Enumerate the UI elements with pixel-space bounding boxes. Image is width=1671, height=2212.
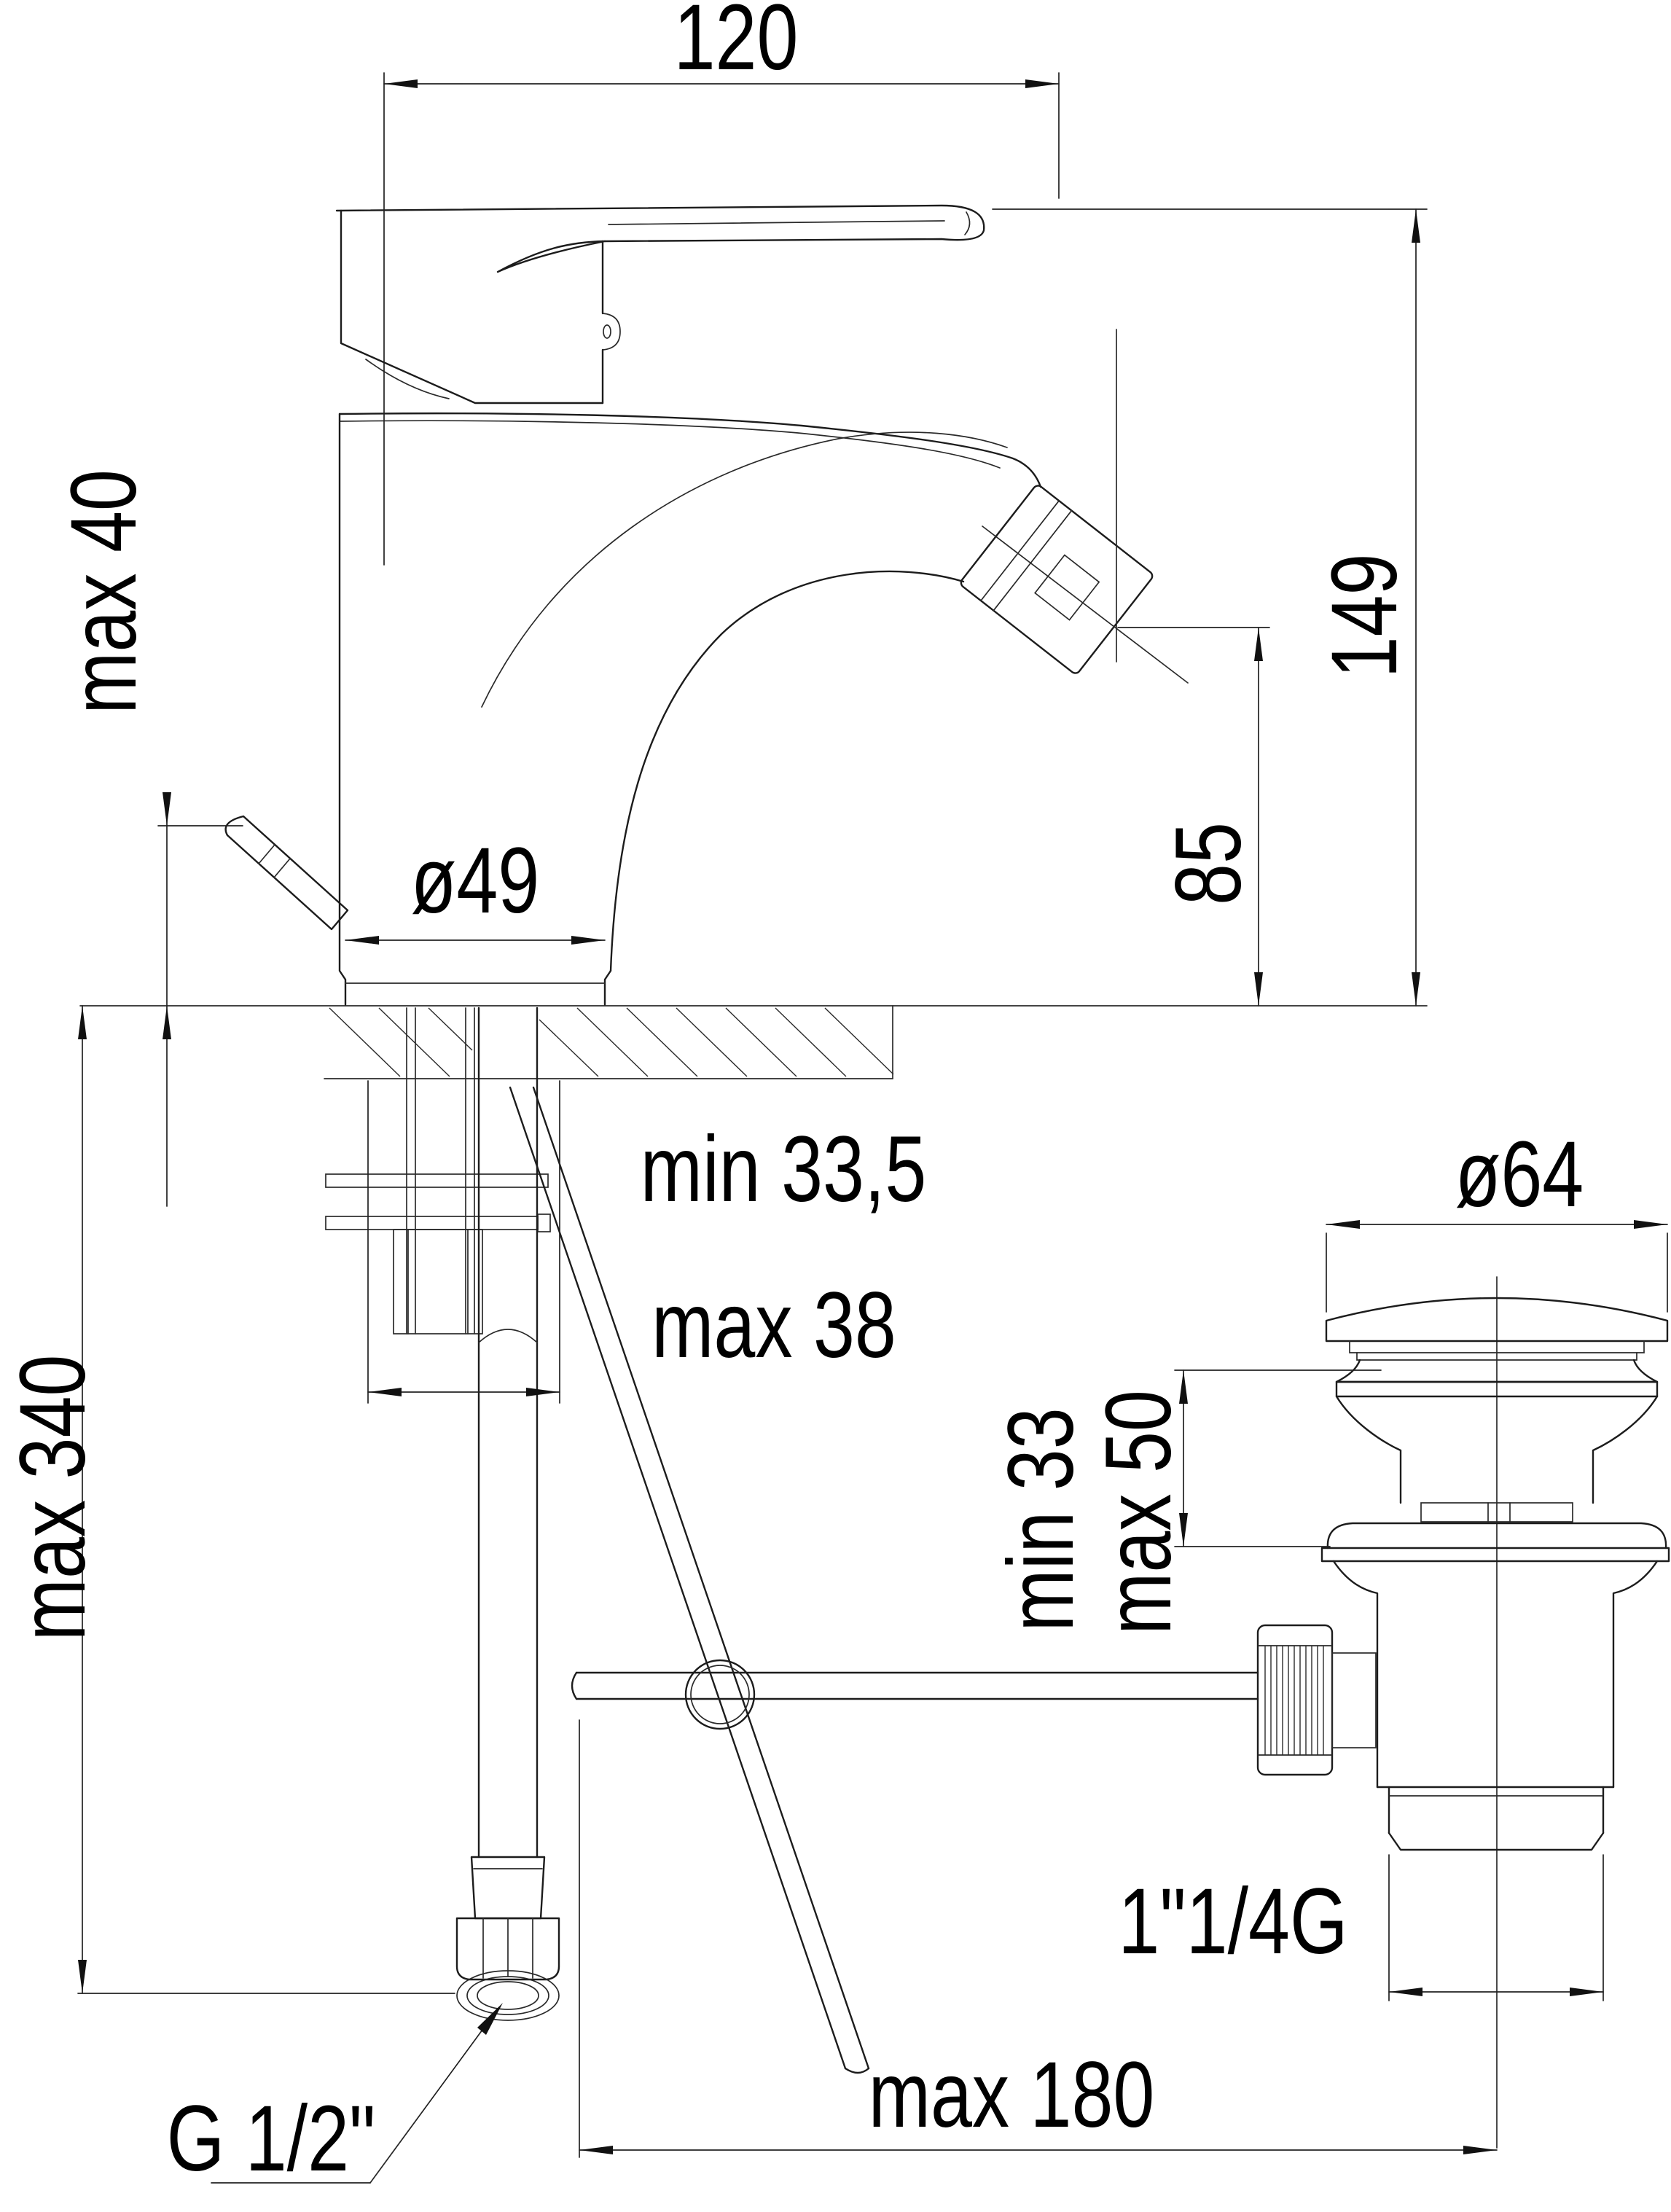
rod-end-cap	[572, 1673, 576, 1699]
washer-lower-cap	[538, 1214, 550, 1232]
nut-face-outer	[457, 1971, 559, 2020]
label-120: 120	[674, 0, 799, 90]
spout-front-profile	[611, 571, 963, 971]
handle-seam	[608, 221, 944, 224]
label-max180: max 180	[869, 2042, 1155, 2147]
pivot-left-edge	[341, 211, 603, 403]
rod-tip	[845, 2068, 869, 2073]
handle-lever	[337, 206, 984, 272]
nut-collar	[1332, 1653, 1376, 1748]
popup-lever-knob	[226, 816, 348, 929]
dim-deck-thickness: min 33,5 max 38	[368, 1081, 926, 1403]
nut-face-bore	[477, 1982, 539, 2009]
fixing-hardware	[326, 1008, 550, 1334]
washer-lower	[326, 1216, 538, 1230]
mounting-deck	[80, 1006, 1427, 1079]
handle-pivot-block	[341, 211, 620, 403]
label-min335: min 33,5	[641, 1117, 927, 1222]
label-o64: ø64	[1455, 1122, 1584, 1227]
dim-waste-thread: 1"1/4G	[1118, 1855, 1603, 2001]
nozzle-insert	[1035, 555, 1099, 620]
label-85: 85	[1156, 822, 1261, 905]
base-right-chamfer	[605, 971, 611, 1005]
drawing-sheet: 120 149 85 max 40 ø49 min 33,5	[0, 0, 1671, 2212]
lever-seam-1	[259, 845, 275, 864]
aerator-nozzle	[959, 484, 1154, 676]
flexible-hose	[457, 1008, 559, 2020]
body-top-seam	[340, 421, 1000, 468]
lever-seam-2	[274, 859, 290, 878]
threaded-studs	[407, 1008, 474, 1334]
dim-waste-deck-thickness: min 33 max 50	[988, 1370, 1381, 1635]
label-max40: max 40	[51, 469, 156, 714]
leader-hose-thread: G 1/2"	[167, 2003, 503, 2191]
nozzle-axis-centerline	[982, 526, 1188, 683]
handle-spike	[498, 241, 605, 272]
knurling	[1265, 1646, 1323, 1755]
pull-rod-diagonal	[510, 1087, 869, 2073]
washer-upper	[326, 1174, 548, 1187]
waste-knurled-nut	[1258, 1625, 1376, 1775]
pivot-bevel-shadow	[366, 359, 449, 399]
faucet-mixer	[226, 206, 1188, 1005]
hose-collar	[471, 1857, 544, 1918]
label-G12: G 1/2"	[167, 2086, 376, 2191]
label-min33: min 33	[988, 1407, 1093, 1631]
nozzle-outline	[959, 484, 1154, 676]
dim-spout-height: 85	[1118, 628, 1269, 1006]
nozzle-ring-1	[981, 501, 1059, 601]
label-1-14G: 1"1/4G	[1118, 1869, 1347, 1974]
deck-hatching	[329, 1008, 893, 1076]
hose-hex-nut	[457, 1918, 559, 2020]
dim-lever-max: max 40	[51, 469, 243, 1206]
popup-waste	[1258, 1277, 1669, 2148]
ball-joint	[686, 1660, 754, 1729]
lever-knob-outline	[226, 816, 348, 929]
dim-spout-projection: 120	[384, 0, 1059, 565]
technical-drawing: 120 149 85 max 40 ø49 min 33,5	[0, 0, 1671, 2212]
handle-end-seam	[965, 212, 970, 235]
screw-boss	[603, 313, 620, 350]
horizontal-rod	[572, 1673, 1258, 1699]
dim-rod-reach: max 180	[579, 1720, 1497, 2157]
nozzle-centerlines	[982, 329, 1188, 683]
screw-slot	[603, 325, 611, 338]
spout-crease	[482, 432, 1007, 707]
hose-bend-seam	[479, 1329, 537, 1343]
dim-supply-max: max 340	[0, 1006, 455, 1993]
label-149: 149	[1312, 554, 1417, 679]
body-top-spout-top	[340, 413, 1041, 487]
label-max50: max 50	[1086, 1390, 1191, 1635]
label-max340: max 340	[0, 1355, 104, 1641]
waste-tailpiece	[1389, 1787, 1603, 1850]
dim-body-diameter: ø49	[345, 828, 605, 945]
waste-body	[1322, 1503, 1669, 1787]
label-o49: ø49	[411, 828, 539, 933]
clamp-washers	[326, 1174, 550, 1232]
label-max38: max 38	[651, 1273, 896, 1377]
